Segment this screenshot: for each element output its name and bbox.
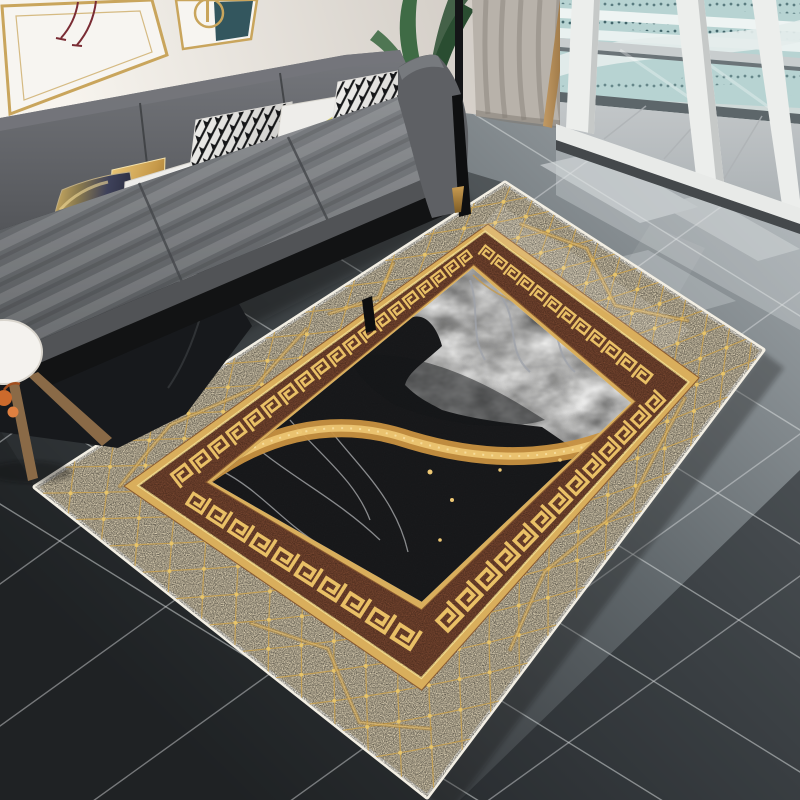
lattice-node [364,664,368,668]
lattice-node [265,359,269,363]
lattice-node [725,346,729,350]
lattice-node [546,596,550,600]
lattice-node [721,372,725,376]
lattice-node [364,694,368,698]
living-room-photo: Modern living room with a charcoal velve… [0,0,800,800]
lattice-node [695,383,699,387]
lattice-node [613,273,617,277]
lattice-node [182,437,186,441]
lattice-node [143,464,147,468]
lattice-node [462,226,466,230]
lattice-node [226,385,230,389]
lattice-node [299,673,303,677]
lattice-node [69,491,73,495]
lattice-node [202,567,206,571]
lattice-node [665,419,669,423]
lattice-node [266,647,270,651]
lattice-node [170,542,174,546]
lattice-node [200,595,204,599]
lattice-node [147,438,151,442]
lattice-node [488,670,492,674]
lattice-node [658,302,662,306]
lattice-node [606,493,610,497]
lattice-node [429,745,433,749]
lattice-node [396,689,400,693]
lattice-node [428,714,432,718]
lattice-node [135,543,139,547]
lattice-node [332,699,336,703]
lattice-node [692,409,696,413]
lattice-node [267,618,271,622]
lattice-node [233,621,237,625]
lattice-node [299,643,303,647]
lattice-node [517,604,521,608]
lattice-node [502,200,506,204]
scene-svg: Modern living room with a charcoal velve… [0,0,800,800]
lattice-node [487,640,491,644]
lattice-node [137,516,141,520]
lattice-node [102,517,106,521]
lattice-node [576,530,580,534]
lattice-node [168,569,172,573]
lattice-node [105,491,109,495]
lattice-node [268,589,272,593]
lattice-node [635,287,639,291]
lattice-node [524,215,528,219]
lattice-node [300,614,304,618]
lattice-node [458,677,462,681]
lattice-node [234,592,238,596]
lattice-node [575,558,579,562]
lattice-node [332,639,336,643]
lattice-node [636,456,640,460]
lattice-node [423,253,427,257]
gold-bar-icon [206,0,209,22]
lattice-node [458,708,462,712]
lattice-node [663,446,667,450]
lattice-node [702,331,706,335]
lattice-node [108,465,112,469]
lattice-node [397,720,401,724]
lattice-node [221,410,225,414]
lattice-node [398,751,402,755]
lattice-node [698,357,702,361]
